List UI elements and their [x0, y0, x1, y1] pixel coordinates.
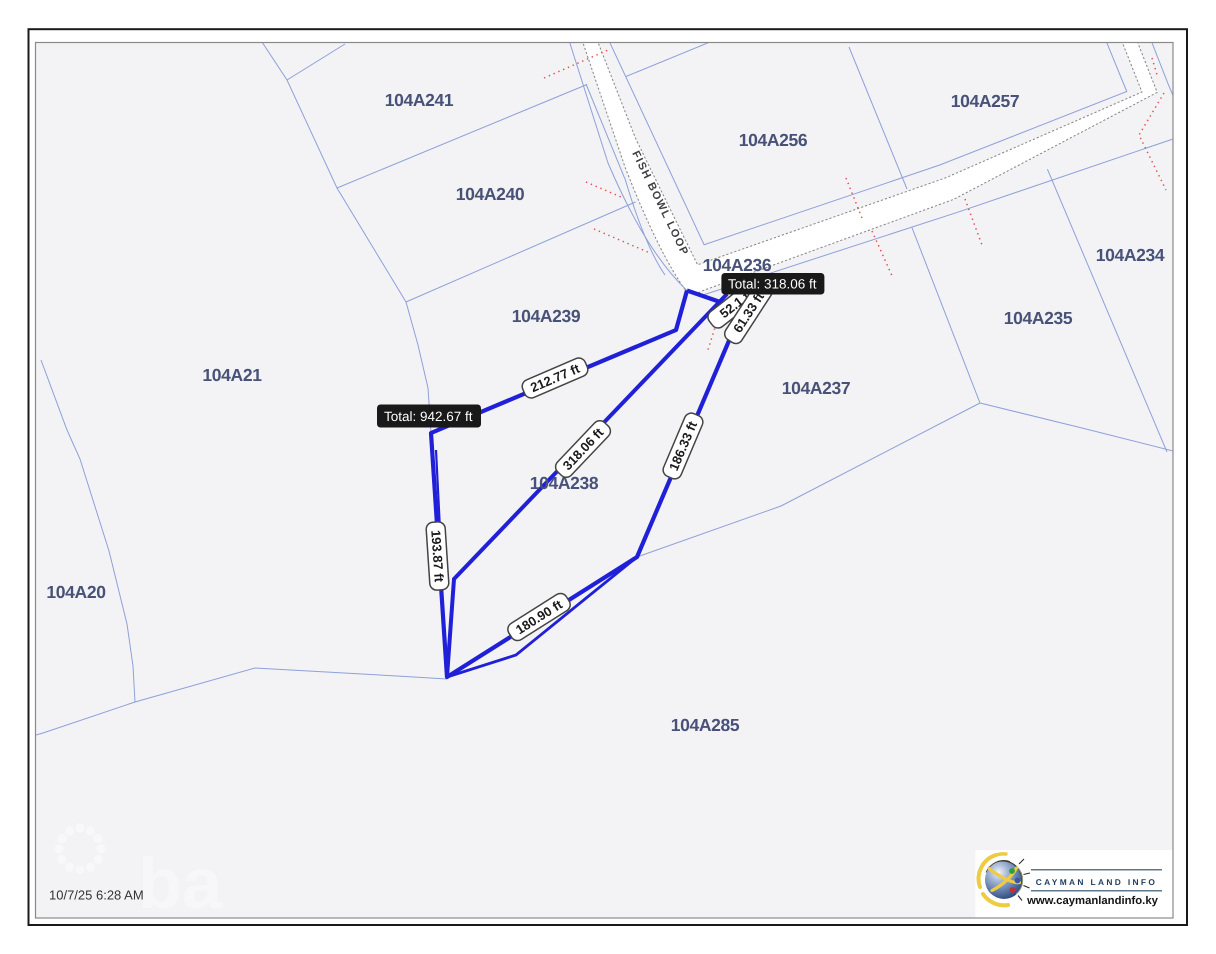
svg-text:Total: 942.67 ft: Total: 942.67 ft [384, 409, 473, 424]
svg-text:104A236: 104A236 [703, 255, 772, 275]
svg-text:104A234: 104A234 [1096, 245, 1165, 265]
svg-text:104A256: 104A256 [739, 130, 808, 150]
svg-text:104A257: 104A257 [951, 91, 1020, 111]
svg-text:104A240: 104A240 [456, 184, 525, 204]
svg-text:104A235: 104A235 [1004, 308, 1073, 328]
svg-text:www.caymanlandinfo.ky: www.caymanlandinfo.ky [1026, 895, 1159, 907]
svg-text:104A237: 104A237 [782, 378, 851, 398]
svg-text:104A20: 104A20 [46, 582, 106, 602]
svg-text:104A21: 104A21 [202, 365, 262, 385]
svg-text:10/7/25 6:28 AM: 10/7/25 6:28 AM [49, 888, 144, 903]
svg-text:CAYMAN LAND INFO: CAYMAN LAND INFO [1036, 877, 1158, 887]
svg-text:Total: 318.06 ft: Total: 318.06 ft [728, 277, 817, 292]
svg-text:ba: ba [138, 844, 223, 924]
svg-text:104A239: 104A239 [512, 306, 581, 326]
svg-text:104A241: 104A241 [385, 90, 454, 110]
svg-text:104A285: 104A285 [671, 715, 740, 735]
